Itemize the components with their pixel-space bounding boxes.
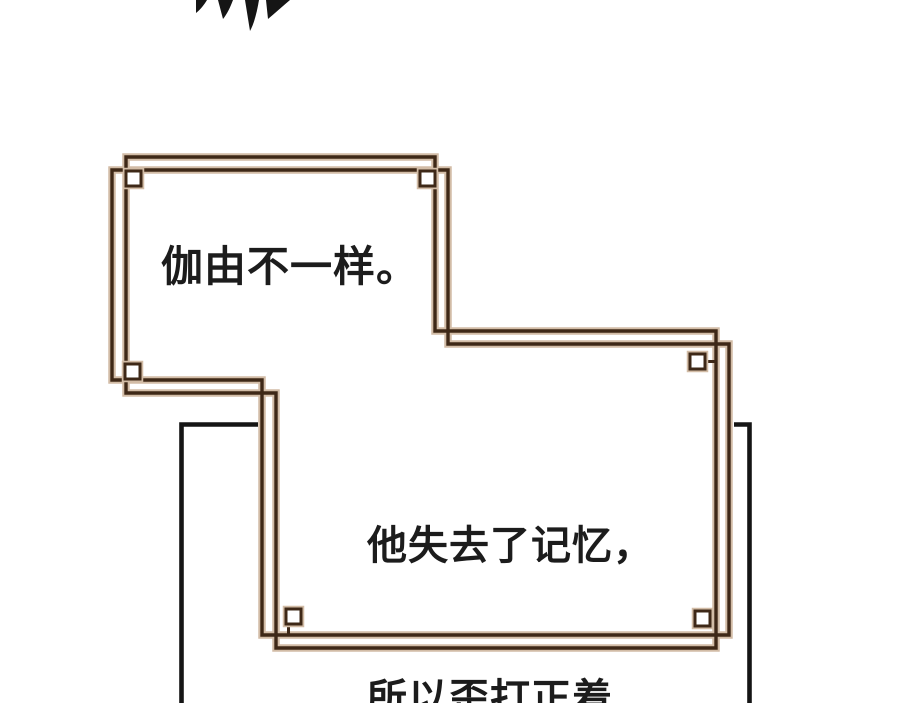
dialogue-2-line-1: 他失去了记忆， [367,521,654,572]
dialogue-text-1: 伽由不一样。 [161,243,419,291]
dialogue-text-2: 他失去了记忆， 所以歪打正着 舍了情。 [367,419,654,703]
hair-tip-spikes [196,0,290,31]
dialogue-2-line-2: 所以歪打正着 [367,674,654,703]
comic-page: 伽由不一样。 他失去了记忆， 所以歪打正着 舍了情。 [0,0,900,703]
